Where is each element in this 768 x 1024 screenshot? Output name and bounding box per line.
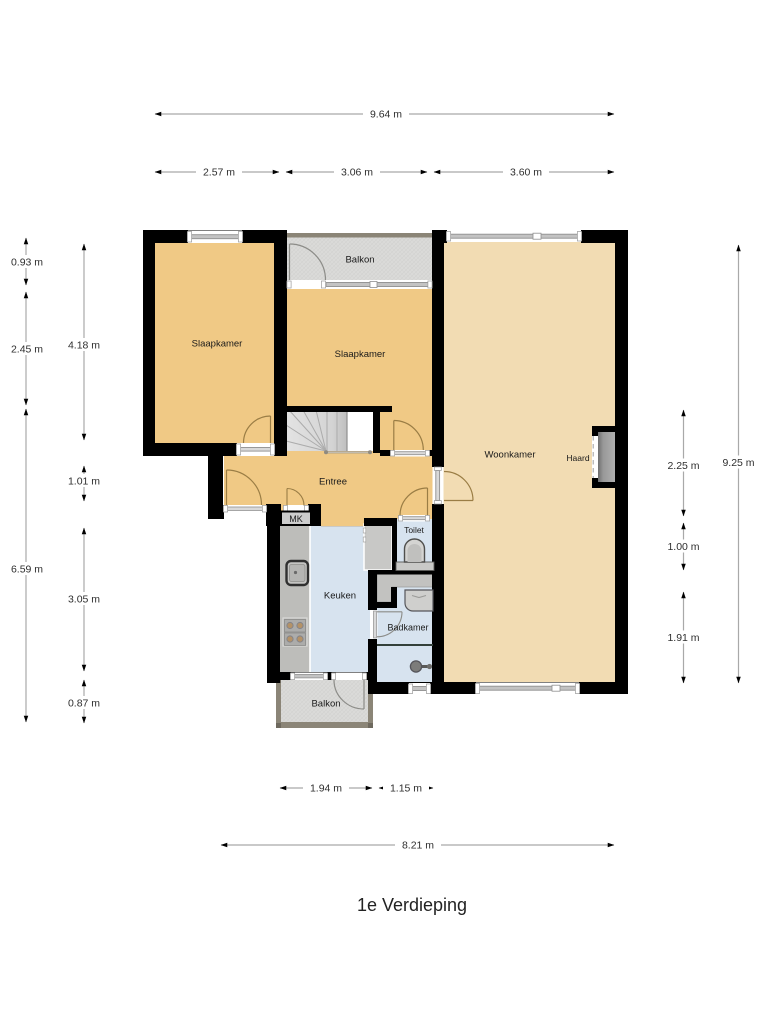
svg-text:9.25 m: 9.25 m xyxy=(722,457,754,469)
svg-text:2.45 m: 2.45 m xyxy=(11,344,43,356)
svg-text:1.00 m: 1.00 m xyxy=(667,541,699,553)
svg-text:Slaapkamer: Slaapkamer xyxy=(192,339,243,350)
svg-text:Slaapkamer: Slaapkamer xyxy=(335,349,386,360)
svg-text:1.15 m: 1.15 m xyxy=(390,783,422,795)
svg-text:1e Verdieping: 1e Verdieping xyxy=(357,895,467,915)
svg-text:0.93 m: 0.93 m xyxy=(11,257,43,269)
svg-text:1.01 m: 1.01 m xyxy=(68,476,100,488)
svg-text:Woonkamer: Woonkamer xyxy=(484,450,535,461)
svg-text:Haard: Haard xyxy=(566,453,589,463)
svg-text:MK: MK xyxy=(289,514,303,524)
svg-text:1.91 m: 1.91 m xyxy=(667,632,699,644)
svg-text:Toilet: Toilet xyxy=(404,525,424,535)
svg-text:Entree: Entree xyxy=(319,477,347,488)
svg-text:Balkon: Balkon xyxy=(345,255,374,266)
svg-text:Badkamer: Badkamer xyxy=(387,623,428,633)
svg-text:3.05 m: 3.05 m xyxy=(68,594,100,606)
svg-text:8.21 m: 8.21 m xyxy=(402,840,434,852)
svg-text:3.60 m: 3.60 m xyxy=(510,167,542,179)
svg-text:4.18 m: 4.18 m xyxy=(68,340,100,352)
svg-text:Balkon: Balkon xyxy=(311,699,340,710)
svg-text:1.94 m: 1.94 m xyxy=(310,783,342,795)
svg-text:Keuken: Keuken xyxy=(324,591,356,602)
svg-text:9.64 m: 9.64 m xyxy=(370,109,402,121)
svg-text:3.06 m: 3.06 m xyxy=(341,167,373,179)
svg-text:6.59 m: 6.59 m xyxy=(11,564,43,576)
svg-text:2.57 m: 2.57 m xyxy=(203,167,235,179)
svg-text:2.25 m: 2.25 m xyxy=(667,460,699,472)
svg-text:0.87 m: 0.87 m xyxy=(68,698,100,710)
